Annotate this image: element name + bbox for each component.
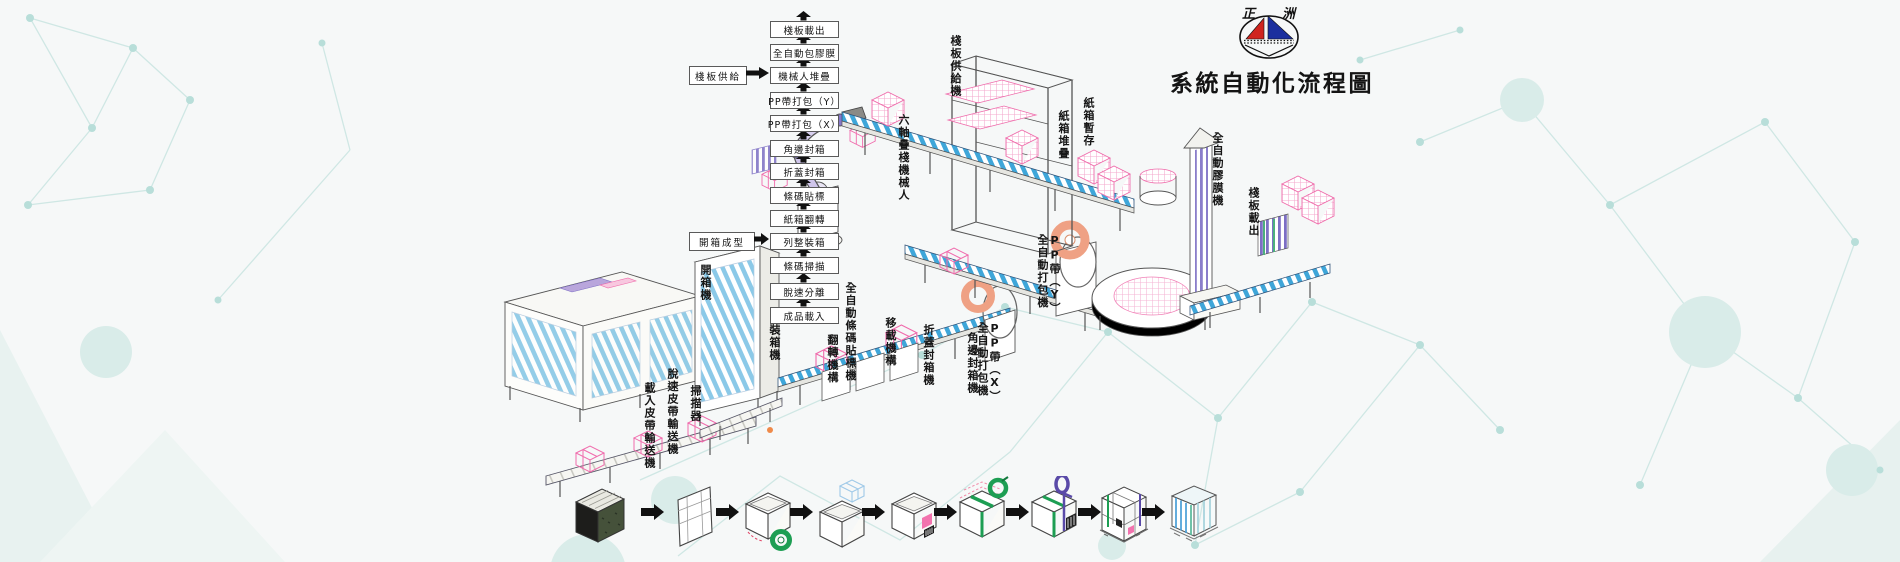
automation-flow-banner: 棧板載出 全自動包膠膜 機械人堆疊 PP帶打包（Y） PP帶打包（X） 角邊封箱… <box>0 0 1900 562</box>
pallet-wrapped-load-icon <box>1164 478 1224 560</box>
page-title: 系統自動化流程圖 <box>1170 64 1374 98</box>
company-logo: 正 洲 <box>1236 2 1302 62</box>
flow-step-speed-separate: 脫速分離 <box>770 283 839 300</box>
label-film-wrapper: 全自動膠膜機 <box>1211 132 1223 207</box>
right-arrow-icon <box>746 67 769 79</box>
process-arrow-icon <box>1142 504 1165 520</box>
label-case-packer: 裝箱機 <box>768 324 780 362</box>
flow-step-pallet-out: 棧板載出 <box>770 21 839 38</box>
process-arrow-icon <box>641 504 664 520</box>
flow-step-pp-strap-x: PP帶打包（X） <box>770 115 839 132</box>
box-top-taping-icon <box>954 476 1010 560</box>
right-arrow-icon <box>754 233 769 245</box>
flow-step-carton-turn: 紙箱翻轉 <box>770 210 839 227</box>
flow-input-pallet-supply: 棧板供給 <box>689 66 747 85</box>
label-infeed-belt: 載入皮帶輸送機 <box>643 382 655 470</box>
label-six-axis-robot: 六軸疊棧機械人 <box>897 114 909 202</box>
label-strapper-x: PP帶（X） 全自動打包機 <box>976 322 1000 403</box>
label-carton-stacking: 紙箱堆疊 <box>1057 110 1069 160</box>
process-arrow-icon <box>862 504 885 520</box>
process-arrow-icon <box>716 504 739 520</box>
flow-step-film-wrap: 全自動包膠膜 <box>770 44 839 61</box>
flow-step-case-packing: 列整裝箱 <box>770 233 839 250</box>
label-transfer-unit: 移載機構 <box>884 317 896 367</box>
flow-step-product-infeed: 成品載入 <box>770 307 839 324</box>
flow-step-corner-seal: 角邊封箱 <box>770 140 839 157</box>
strapper-y <box>1055 225 1096 316</box>
label-turnover-unit: 翻轉機構 <box>826 334 838 384</box>
label-auto-labeler: 全自動條碼貼標機 <box>844 282 856 382</box>
label-pallet-supply: 棧板供給機 <box>949 35 961 98</box>
label-flap-sealer: 折蓋封箱機 <box>922 324 934 387</box>
flow-step-robot-stacking: 機械人堆疊 <box>770 67 839 84</box>
carton-blank-icon <box>666 480 722 558</box>
label-strapper-y: PP帶（Y） 全自動打包機 <box>1036 234 1060 315</box>
carton-blank-stack-icon <box>572 480 628 558</box>
label-separating-belt: 脫速皮帶輸送機 <box>666 368 678 456</box>
label-pallet-out: 棧板載出 <box>1247 187 1259 237</box>
box-strapping-icon <box>1026 476 1082 560</box>
flow-step-barcode-label: 條碼貼標 <box>770 187 839 204</box>
flow-step-barcode-scan: 條碼掃描 <box>770 257 839 274</box>
process-arrow-icon <box>790 504 813 520</box>
flow-step-flap-seal: 折蓋封箱 <box>770 163 839 180</box>
label-scanner: 掃描器 <box>689 385 701 423</box>
flow-input-case-forming: 開箱成型 <box>689 232 755 251</box>
label-case-opener: 開箱機 <box>699 264 711 302</box>
logo-left-char: 正 <box>1242 7 1257 22</box>
flow-step-pp-strap-y: PP帶打包（Y） <box>770 92 839 109</box>
box-bottom-taping-icon <box>740 480 796 558</box>
label-carton-buffer: 紙箱暫存 <box>1082 97 1094 147</box>
